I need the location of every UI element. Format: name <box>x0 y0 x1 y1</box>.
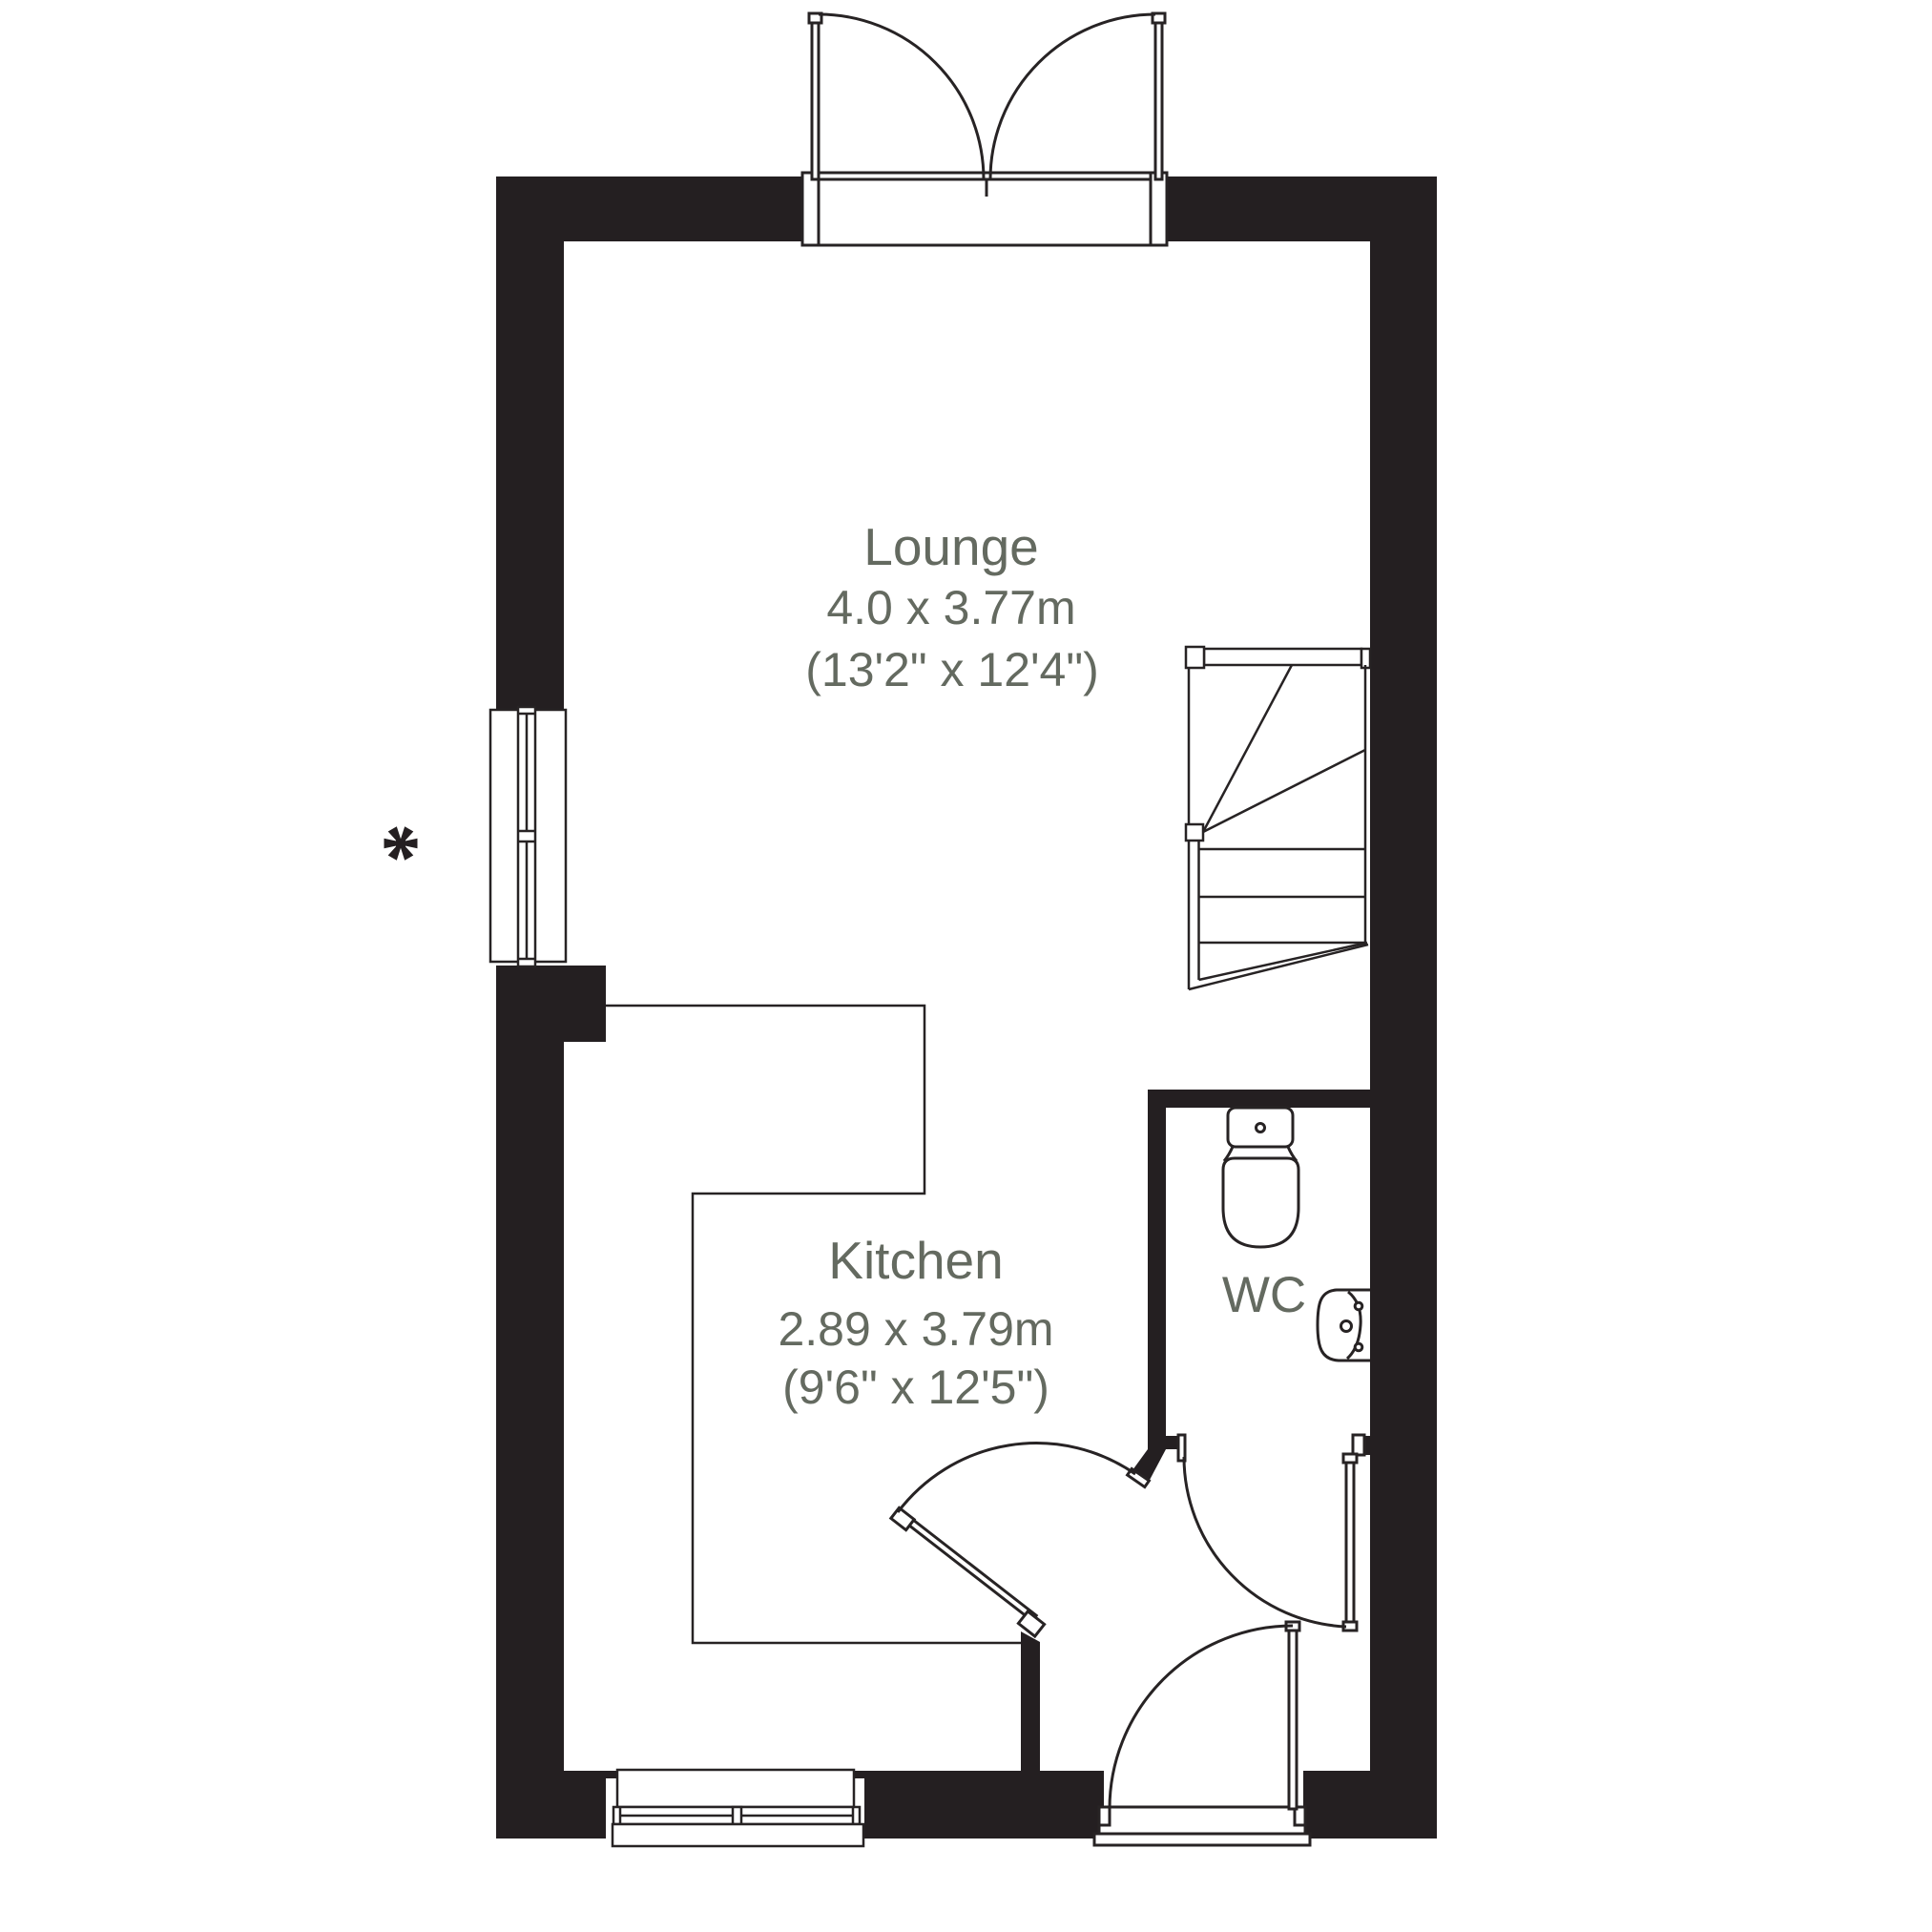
svg-text:Kitchen: Kitchen <box>828 1231 1003 1290</box>
svg-text:(13'2" x 12'4"): (13'2" x 12'4") <box>805 643 1099 696</box>
svg-text:WC: WC <box>1222 1267 1306 1323</box>
svg-text:(9'6" x 12'5"): (9'6" x 12'5") <box>782 1361 1049 1414</box>
svg-text:2.89 x 3.79m: 2.89 x 3.79m <box>778 1302 1053 1356</box>
svg-text:4.0 x 3.77m: 4.0 x 3.77m <box>826 581 1075 634</box>
svg-text:Lounge: Lounge <box>863 517 1039 576</box>
